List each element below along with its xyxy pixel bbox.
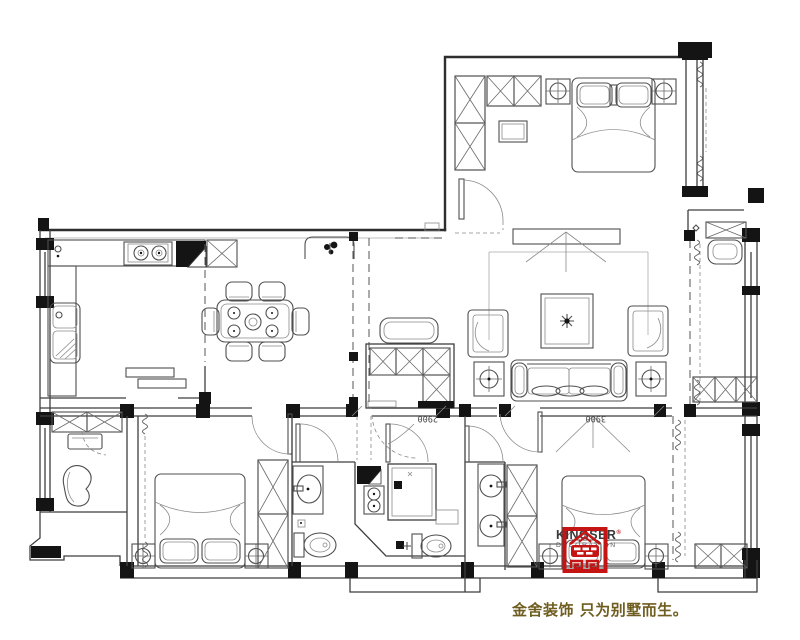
- bedroom-2: [132, 414, 293, 568]
- tv-cabinet: [513, 229, 620, 244]
- nightstand: [652, 79, 676, 104]
- living-rug: [541, 294, 593, 348]
- dining-room: [202, 282, 309, 361]
- brand-slogan: 金舍装饰 只为别墅而生。: [512, 599, 742, 620]
- door-swing: [252, 414, 292, 454]
- balcony-cabinet: [695, 544, 747, 568]
- entry-niche: [305, 237, 445, 259]
- living-room: [468, 229, 700, 406]
- dining-table: [217, 300, 293, 342]
- toilet-icon: [294, 533, 336, 557]
- drain-icon: [55, 246, 61, 252]
- nightstand: [546, 79, 570, 104]
- faucet-icon: [403, 542, 411, 550]
- wardrobe: [507, 465, 537, 567]
- stove-icon: [124, 242, 172, 265]
- kingser-logo-icon: [562, 526, 608, 574]
- kitchen-sliding-door: [126, 368, 186, 388]
- bed: [572, 78, 655, 172]
- centerpiece-icon: [245, 314, 261, 330]
- double-vanity: [478, 464, 506, 546]
- bathroom-1: [292, 416, 355, 566]
- wardrobe: [455, 76, 541, 170]
- bathroom-3: [465, 426, 506, 570]
- fridge-icon: [176, 241, 206, 267]
- plant-icon: [324, 242, 337, 255]
- sofa: [511, 360, 627, 401]
- dimension-2900: 2900: [418, 413, 438, 423]
- hall-bench: [380, 318, 438, 343]
- floor-plan-canvas: 2900 3900 KINGSER® DECORATION 金舍装饰 只为别墅而…: [0, 0, 800, 640]
- balcony-cabinet: [693, 377, 757, 402]
- master-bedroom: [455, 62, 706, 233]
- study-room: [40, 412, 138, 566]
- lounge-chair: [63, 466, 91, 506]
- shower: [388, 464, 436, 520]
- side-table-left: [474, 362, 504, 396]
- vanity-sink: [293, 466, 323, 514]
- balcony-bottom-right: [695, 544, 747, 568]
- kitchen: [40, 240, 237, 404]
- armchair-left: [468, 310, 508, 357]
- dimension-3900: 3900: [586, 413, 606, 423]
- decor-star-icon: [560, 314, 574, 328]
- exterior-walls: [30, 42, 764, 592]
- floor-plan-drawing: 2900 3900: [0, 0, 800, 640]
- side-table-right: [636, 362, 666, 396]
- toilet-icon: [412, 534, 451, 558]
- door-swing: [465, 426, 503, 462]
- door-swing: [455, 179, 503, 233]
- registered-mark: ®: [616, 530, 621, 536]
- hallway: [349, 232, 454, 408]
- balcony-right: [693, 222, 757, 402]
- hall-cabinet: [366, 344, 454, 408]
- brand-block: KINGSER® DECORATION: [556, 526, 676, 550]
- laundry-counter: [357, 466, 384, 514]
- door-swing: [296, 424, 338, 462]
- door-swing: [500, 412, 542, 452]
- laundry-basin: [708, 240, 742, 264]
- bed: [155, 474, 245, 568]
